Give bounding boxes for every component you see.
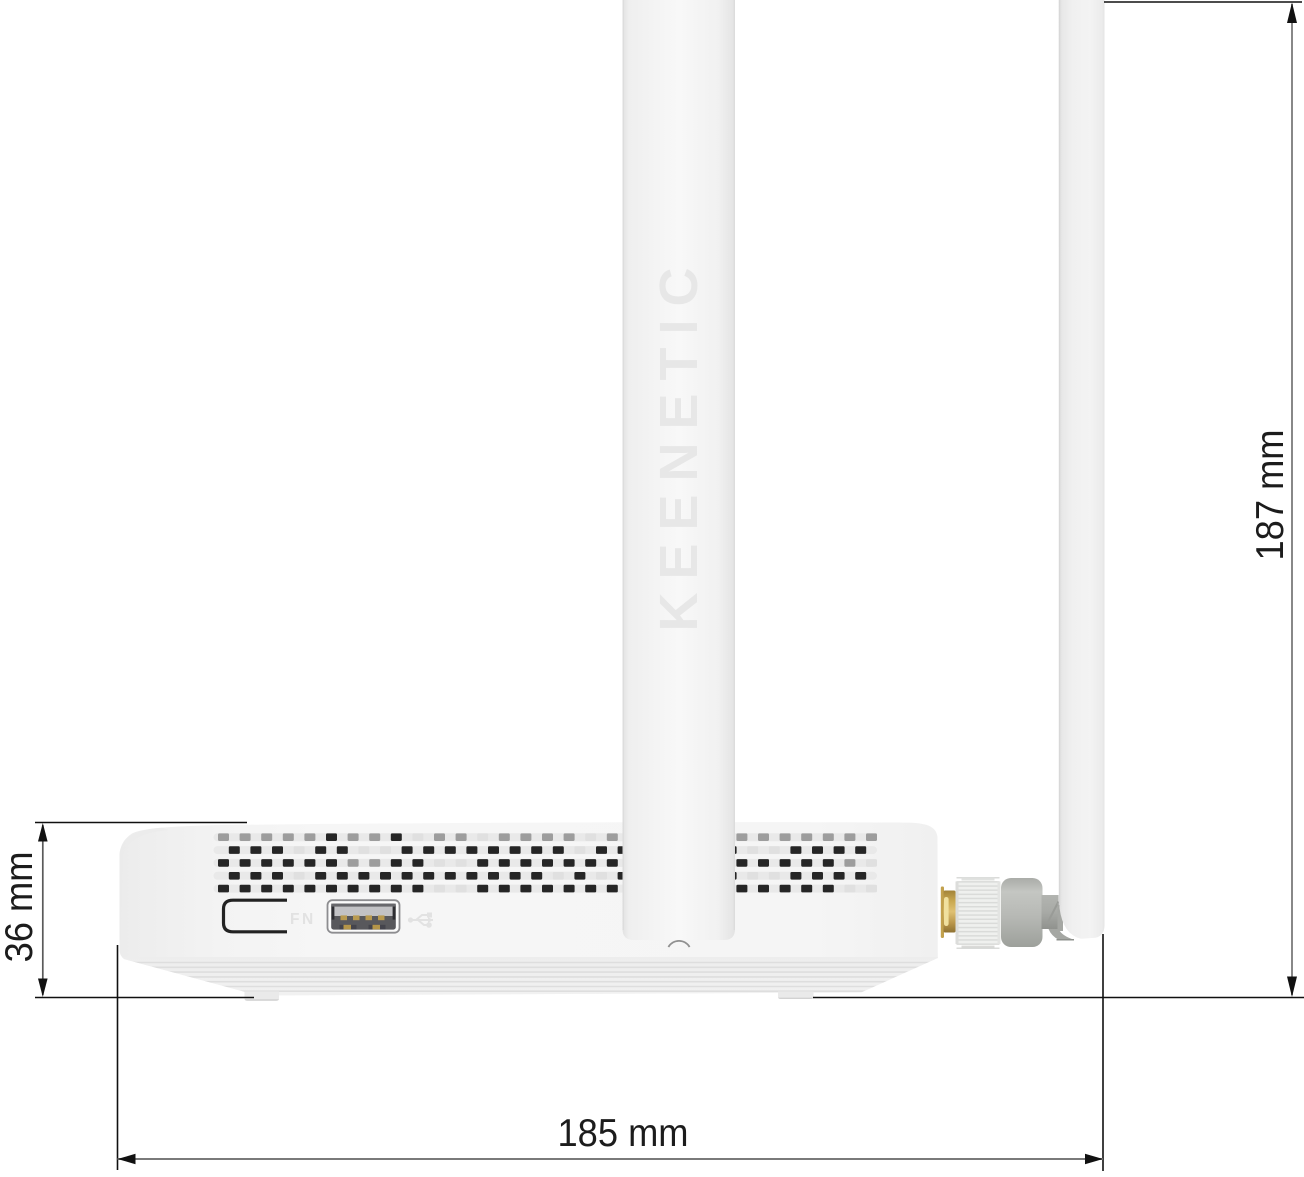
svg-text:FN: FN bbox=[290, 911, 316, 928]
